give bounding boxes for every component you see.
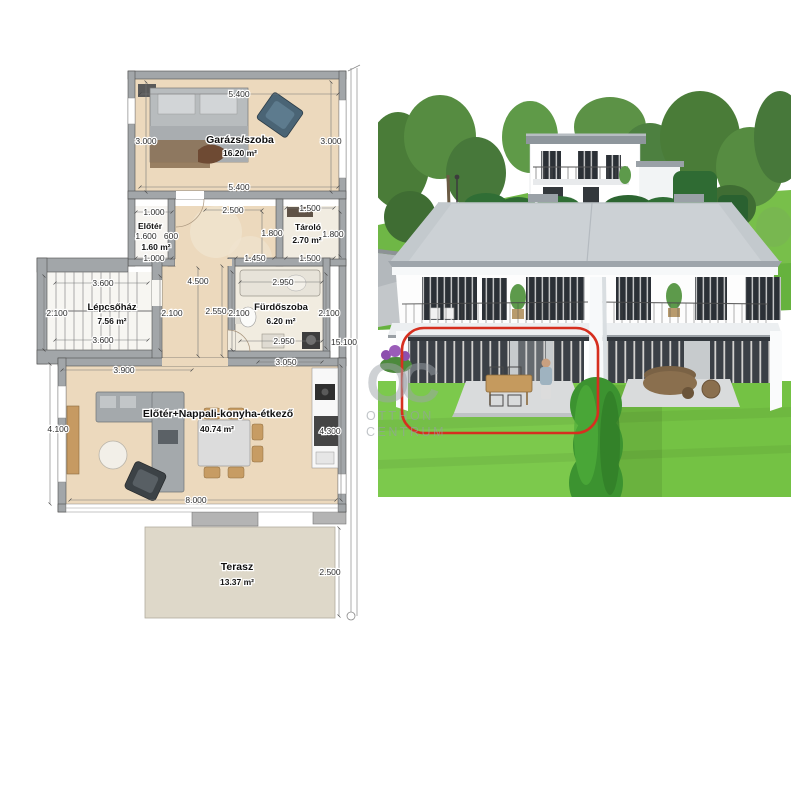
area-stairwell: 7.56 m²	[97, 316, 126, 326]
label-bathroom: Fürdőszoba	[254, 302, 309, 313]
dim-bath-bottom: 2.950	[273, 336, 295, 346]
dim-bath-top: 2.950	[272, 277, 294, 287]
dim-living-topleft: 3.900	[113, 365, 135, 375]
dim-garage-top: 5.400	[228, 89, 250, 99]
dim-bath-left: 2.100	[228, 308, 250, 318]
person-figure	[540, 359, 552, 400]
watermark-line1: OTTHON	[366, 409, 446, 425]
dim-stair-left: 2.100	[46, 308, 68, 318]
balcony-chair	[430, 308, 440, 319]
balcony-chair	[444, 308, 454, 319]
dim-living-right: 4.300	[319, 426, 341, 436]
dim-corridor: 4.500	[187, 276, 209, 286]
watermark-otthon-centrum: OC OTTHON CENTRUM	[366, 356, 446, 440]
balcony-plant-right	[666, 283, 682, 309]
area-tarolo: 2.70 m²	[292, 235, 321, 245]
area-living: 40.74 m²	[200, 424, 234, 434]
dim-bath-right: 2.100	[318, 308, 340, 318]
dim-tarolo-right: 1.800	[322, 229, 344, 239]
label-tarolo: Tároló	[295, 222, 321, 232]
dim-eloter-w: 1.600	[135, 231, 157, 241]
label-terrace: Terasz	[221, 561, 254, 573]
dim-eloter-w2: 600	[164, 231, 178, 241]
dim-living-topright: 3.050	[275, 357, 297, 367]
dim-tarolo-bottom: 1.500	[299, 253, 321, 263]
watermark-logo: OC	[366, 356, 446, 409]
area-bathroom: 6.20 m²	[266, 316, 295, 326]
dim-living-bottom: 8.000	[185, 495, 207, 505]
dim-stair-right: 2.100	[161, 308, 183, 318]
dim-garage-bottom: 5.400	[228, 182, 250, 192]
label-eloter: Előtér	[138, 221, 163, 231]
dim-total-height: 15.100	[331, 337, 357, 347]
floor-plan: 5.400 3.000 3.000 5.400 1.000 2.500 1.50…	[28, 52, 368, 630]
area-eloter: 1.60 m²	[141, 242, 170, 252]
dim-stair-top: 3.600	[92, 278, 114, 288]
dim-hall-top: 2.500	[222, 205, 244, 215]
watermark-line2: CENTRUM	[366, 425, 446, 441]
pillar-right	[770, 331, 782, 411]
dim-eloter-bottom: 1.000	[143, 253, 165, 263]
label-living: Előtér+Nappali-konyha-étkező	[143, 408, 293, 420]
dim-terrace-right: 2.500	[319, 567, 341, 577]
dim-living-left: 4.100	[47, 424, 69, 434]
dim-garage-right: 3.000	[320, 136, 342, 146]
dim-stair-bottom: 3.600	[92, 335, 114, 345]
dim-tarolo-left: 1.800	[261, 228, 283, 238]
dim-garage-left: 3.000	[135, 136, 157, 146]
dim-eloter-top: 1.000	[143, 207, 165, 217]
area-garage: 16.20 m²	[223, 148, 257, 158]
listing-image: 5.400 3.000 3.000 5.400 1.000 2.500 1.50…	[0, 0, 800, 800]
area-terrace: 13.37 m²	[220, 577, 254, 587]
dim-bath-outer: 2.550	[205, 306, 227, 316]
label-garage: Garázs/szoba	[206, 134, 274, 146]
center-hedge	[569, 377, 623, 497]
label-stairwell: Lépcsőház	[87, 302, 136, 313]
dim-hall-bottom: 1.450	[244, 253, 266, 263]
duplex-roof	[388, 194, 782, 275]
dim-tarolo-top: 1.500	[299, 203, 321, 213]
